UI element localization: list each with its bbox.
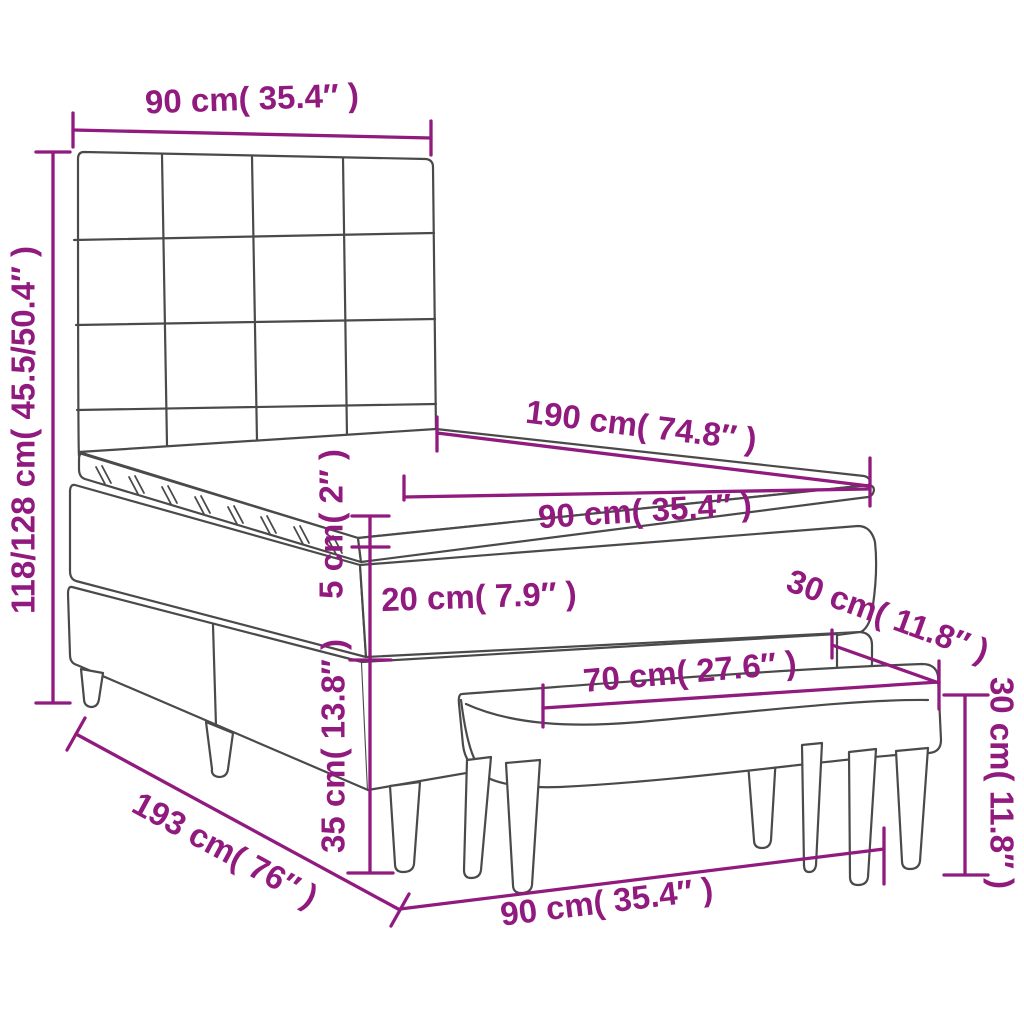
- furniture-drawing: [68, 152, 941, 893]
- bench-leg-front-left: [506, 760, 540, 893]
- label-topper-thickness: 5 cm( 2″ ): [313, 449, 350, 599]
- bed-leg-left-2: [206, 722, 233, 777]
- dim-headboard-width-line: [73, 130, 431, 138]
- bench-leg-front-right: [896, 748, 928, 869]
- dim-base-length-tick-left: [67, 718, 85, 750]
- bench-leg-back-middle: [802, 743, 822, 872]
- headboard: [74, 152, 436, 456]
- label-bench-height: 30 cm( 11.8″ ): [983, 677, 1020, 889]
- label-headboard-width: 90 cm( 35.4″ ): [144, 76, 359, 120]
- bed-leg-front-corner: [390, 782, 420, 872]
- label-base-height: 35 cm( 13.8″ ): [315, 639, 352, 853]
- bench-leg-back-right: [849, 749, 876, 885]
- bench-leg-back-left: [464, 757, 491, 878]
- label-overall-height: 118/128 cm( 45.5/50.4″ ): [5, 246, 42, 614]
- dim-bench-height: [944, 695, 988, 875]
- label-mattress-thickness: 20 cm( 7.9″ ): [381, 574, 578, 618]
- label-base-length: 193 cm( 76″ ): [127, 784, 325, 914]
- diagram-canvas: 90 cm( 35.4″ ) 118/128 cm( 45.5/50.4″ ) …: [0, 0, 1024, 1024]
- bed-dimension-diagram: 90 cm( 35.4″ ) 118/128 cm( 45.5/50.4″ ) …: [0, 0, 1024, 1024]
- dim-headboard-width: [73, 113, 431, 155]
- bed-leg-left-1: [81, 669, 103, 707]
